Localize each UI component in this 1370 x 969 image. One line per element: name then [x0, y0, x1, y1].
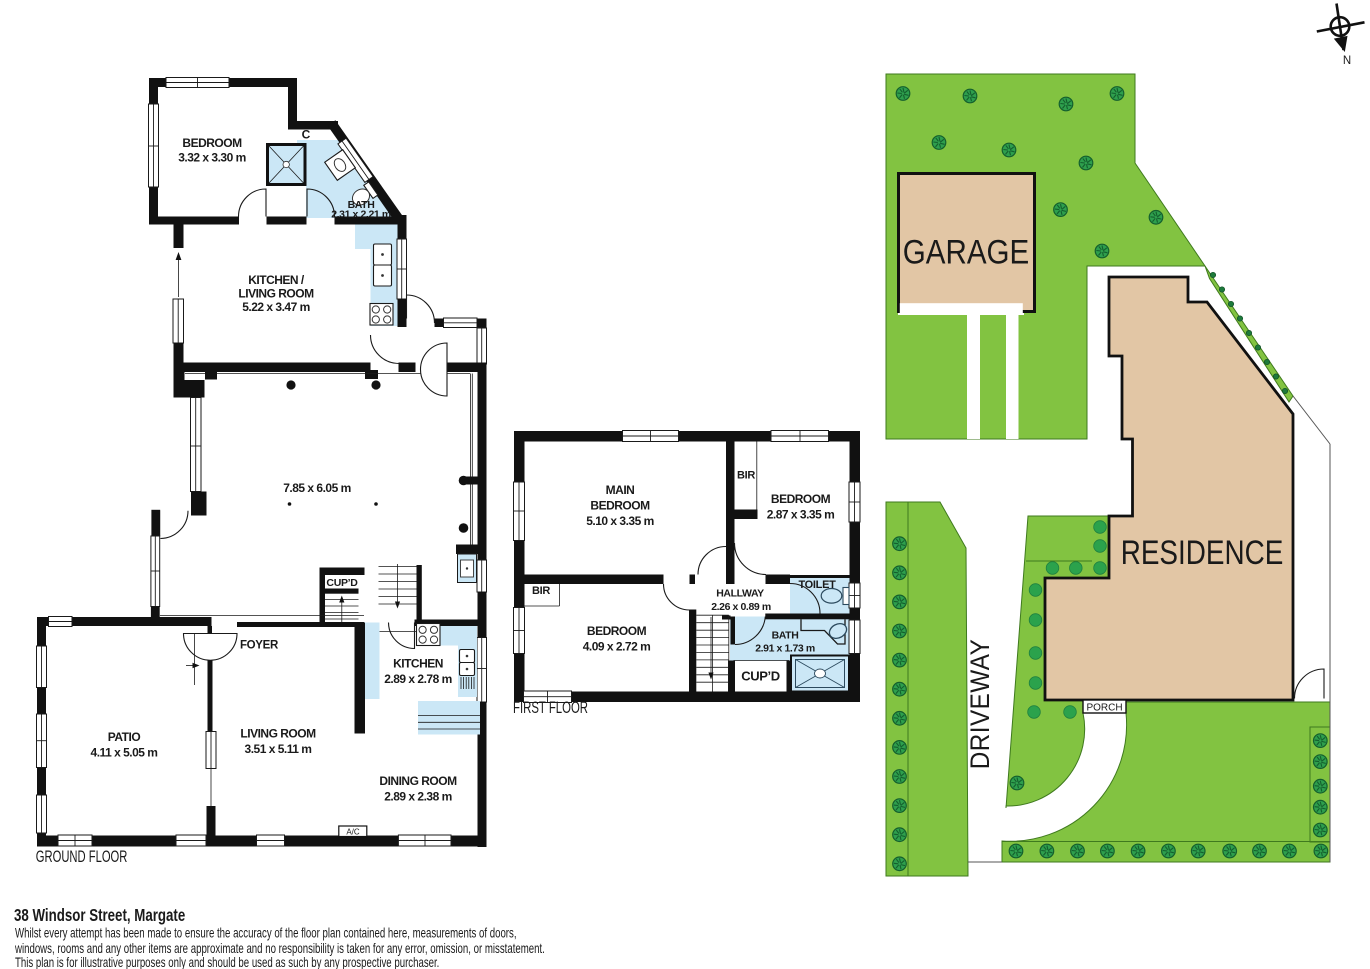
- svg-text:windows, rooms and any other i: windows, rooms and any other items are a…: [14, 941, 545, 956]
- svg-text:5.22 x 3.47 m: 5.22 x 3.47 m: [242, 300, 310, 314]
- svg-text:FIRST FLOOR: FIRST FLOOR: [513, 699, 588, 718]
- svg-text:7.85 x 6.05 m: 7.85 x 6.05 m: [283, 481, 351, 495]
- svg-text:C: C: [302, 128, 311, 142]
- svg-text:N: N: [1343, 55, 1351, 67]
- svg-text:BIR: BIR: [737, 470, 755, 482]
- svg-text:FOYER: FOYER: [240, 640, 279, 652]
- svg-text:GROUND FLOOR: GROUND FLOOR: [36, 848, 128, 867]
- svg-text:GARAGE: GARAGE: [903, 233, 1030, 271]
- svg-text:BEDROOM: BEDROOM: [771, 492, 831, 506]
- svg-text:2.89 x 2.38 m: 2.89 x 2.38 m: [384, 790, 452, 804]
- svg-text:MAIN: MAIN: [606, 483, 635, 497]
- svg-text:HALLWAY: HALLWAY: [716, 588, 764, 600]
- svg-text:2.87 x 3.35 m: 2.87 x 3.35 m: [767, 508, 835, 522]
- svg-text:5.10 x 3.35 m: 5.10 x 3.35 m: [586, 514, 654, 528]
- svg-text:DINING ROOM: DINING ROOM: [379, 774, 457, 788]
- svg-text:CUP’D: CUP’D: [741, 669, 779, 684]
- svg-text:LIVING ROOM: LIVING ROOM: [240, 727, 316, 741]
- svg-text:LIVING ROOM: LIVING ROOM: [238, 287, 314, 301]
- svg-text:PORCH: PORCH: [1086, 703, 1122, 714]
- svg-text:3.51 x 5.11 m: 3.51 x 5.11 m: [245, 742, 312, 756]
- svg-text:RESIDENCE: RESIDENCE: [1121, 533, 1284, 571]
- svg-text:TOILET: TOILET: [798, 579, 836, 591]
- svg-text:BEDROOM: BEDROOM: [182, 136, 242, 150]
- svg-text:2.91 x 1.73 m: 2.91 x 1.73 m: [755, 643, 815, 655]
- svg-text:PATIO: PATIO: [108, 730, 141, 744]
- svg-text:38 Windsor Street, Margate: 38 Windsor Street, Margate: [14, 906, 186, 925]
- svg-text:2.26 x 0.89 m: 2.26 x 0.89 m: [711, 601, 771, 613]
- svg-text:2.31 x 2.21 m: 2.31 x 2.21 m: [331, 209, 391, 221]
- svg-text:BEDROOM: BEDROOM: [587, 624, 647, 638]
- svg-text:2.89 x 2.78 m: 2.89 x 2.78 m: [384, 672, 452, 686]
- svg-text:CUP’D: CUP’D: [326, 577, 358, 589]
- svg-text:4.11 x 5.05 m: 4.11 x 5.05 m: [91, 746, 158, 760]
- svg-text:This plan is for illustrative: This plan is for illustrative purposes o…: [15, 955, 439, 969]
- svg-text:BIR: BIR: [532, 585, 550, 597]
- svg-text:4.09 x 2.72 m: 4.09 x 2.72 m: [583, 640, 651, 654]
- svg-text:KITCHEN: KITCHEN: [393, 657, 443, 671]
- svg-text:Whilst every attempt has been: Whilst every attempt has been made to en…: [15, 926, 517, 941]
- svg-text:BEDROOM: BEDROOM: [590, 499, 650, 513]
- svg-text:A/C: A/C: [346, 828, 360, 837]
- svg-text:DRIVEWAY: DRIVEWAY: [966, 639, 995, 769]
- svg-text:BATH: BATH: [772, 630, 799, 642]
- svg-text:KITCHEN /: KITCHEN /: [248, 273, 305, 287]
- svg-text:3.32 x 3.30 m: 3.32 x 3.30 m: [178, 151, 246, 165]
